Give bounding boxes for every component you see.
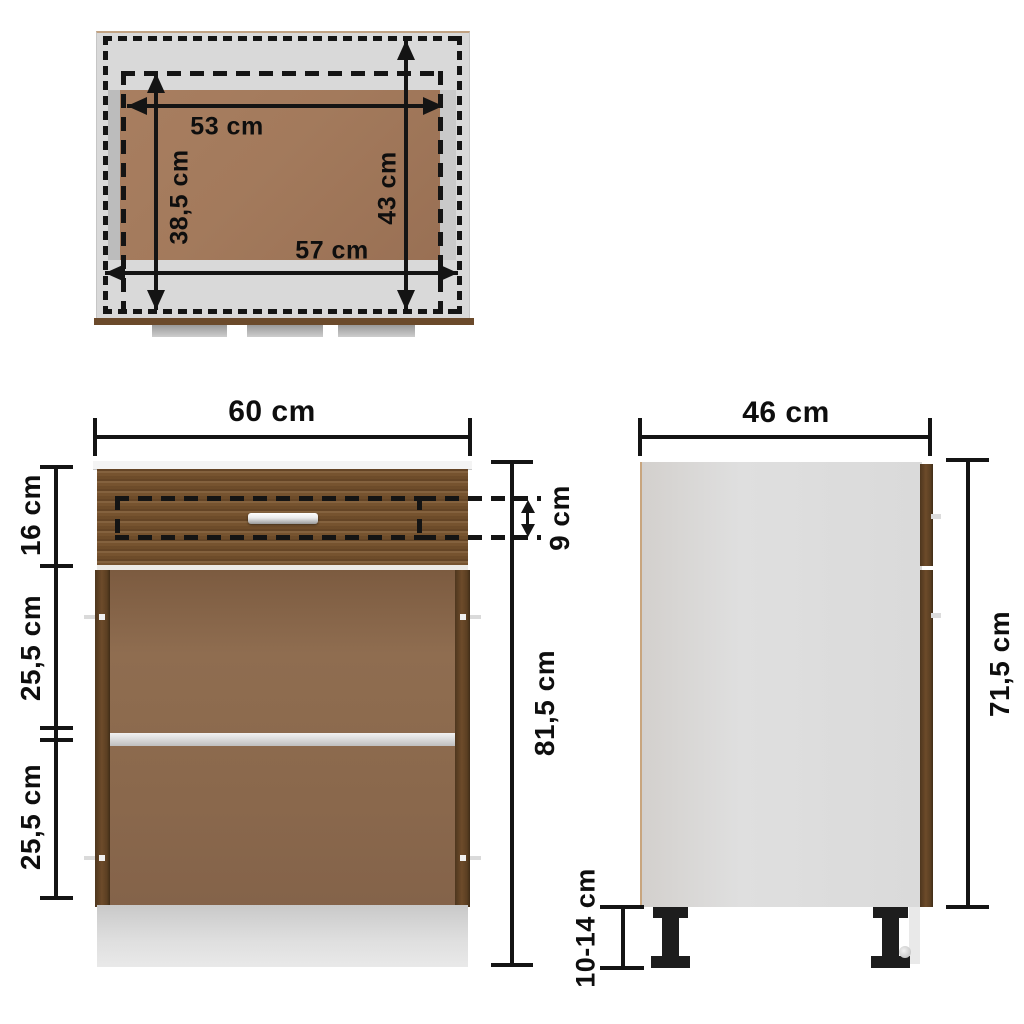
dim-label-body-height: 71,5 cm xyxy=(984,611,1016,717)
drawer-dashed-top xyxy=(115,496,422,501)
top-view-hinge-tab xyxy=(152,325,227,337)
hinge-pin xyxy=(470,856,481,860)
front-plinth xyxy=(97,905,468,967)
left-dim-tick xyxy=(40,738,73,742)
side-panel xyxy=(640,462,922,907)
arrow-up-icon xyxy=(521,500,535,513)
dim-81_5-line xyxy=(510,462,514,965)
arrow-right-icon xyxy=(438,264,458,282)
hinge-dot xyxy=(99,855,105,861)
dim-43-line xyxy=(404,40,408,310)
dim-label-top-outer-depth: 43 cm xyxy=(374,151,403,224)
hinge-pin xyxy=(84,615,95,619)
top-view-hinge-tab xyxy=(247,325,323,337)
dim-60-tick-left xyxy=(93,418,97,456)
arrow-up-icon xyxy=(147,73,165,93)
dim-10-14-tick-top xyxy=(600,905,644,909)
side-handle-mark xyxy=(931,514,941,519)
dim-label-leg-height: 10-14 cm xyxy=(571,868,602,988)
hinge-dot xyxy=(99,614,105,620)
dim-81_5-tick-top xyxy=(491,460,533,464)
dim-10-14-line xyxy=(621,907,625,968)
left-dim-tick xyxy=(40,564,73,568)
left-dim-tick xyxy=(40,726,73,730)
leg-stem xyxy=(882,918,899,958)
drawer-dashed-bottom xyxy=(115,535,422,540)
dim-label-top-outer-width: 57 cm xyxy=(295,237,368,266)
arrow-down-icon xyxy=(147,290,165,310)
dim-10-14-tick-bottom xyxy=(600,966,644,970)
hinge-pin xyxy=(470,615,481,619)
top-view-worktop-front-edge xyxy=(94,318,474,325)
dim-label-top-inner-depth: 38,5 cm xyxy=(166,149,195,244)
dim-60-line xyxy=(95,435,470,439)
drawer-handle xyxy=(248,513,318,524)
dim-label-total-height: 81,5 cm xyxy=(529,650,561,756)
dim-label-side-depth: 46 cm xyxy=(742,396,830,430)
hinge-pin xyxy=(84,856,95,860)
leg-stem xyxy=(662,918,679,958)
left-dim-tick xyxy=(40,896,73,900)
dim-53-line xyxy=(127,104,443,108)
dim-60-tick-right xyxy=(468,418,472,456)
dim-46-tick-right xyxy=(928,418,932,456)
drawer-dashed-right xyxy=(417,496,422,540)
dim-71_5-tick-top xyxy=(946,458,989,462)
drawer-dashed-left xyxy=(115,496,120,540)
arrow-left-icon xyxy=(127,97,147,115)
shelf xyxy=(110,733,455,746)
leg-plate xyxy=(653,907,688,918)
dim-38_5-line xyxy=(154,73,158,310)
dim-label-drawer-inner-height: 9 cm xyxy=(544,485,576,551)
side-handle-mark xyxy=(931,613,941,618)
dim-label-upper-compartment: 25,5 cm xyxy=(15,595,47,701)
side-door-front-edge xyxy=(920,570,933,907)
leg-plate xyxy=(873,907,908,918)
arrow-left-icon xyxy=(105,264,125,282)
side-plinth-strip xyxy=(909,907,920,964)
top-view-hinge-tab xyxy=(338,325,415,337)
hinge-dot xyxy=(460,855,466,861)
dim-71_5-tick-bottom xyxy=(946,905,989,909)
left-dim-tick xyxy=(40,465,73,469)
top-view-left-wall-shadow xyxy=(108,90,120,260)
dim-71_5-line xyxy=(966,460,970,907)
leg-foot xyxy=(651,956,690,968)
left-dim-line xyxy=(54,467,58,898)
dim-label-lower-compartment: 25,5 cm xyxy=(15,764,47,870)
dim-label-drawer-front-height: 16 cm xyxy=(15,474,47,556)
dim-81_5-tick-bottom xyxy=(491,963,533,967)
inner-dashed-top xyxy=(121,71,443,76)
arrow-down-icon xyxy=(521,524,535,537)
arrow-up-icon xyxy=(397,40,415,60)
dim-46-tick-left xyxy=(638,418,642,456)
cabinet-dimension-diagram: 53 cm 57 cm 38,5 cm 43 cm xyxy=(0,0,1024,1024)
arrow-right-icon xyxy=(423,97,443,115)
leg-adjuster-screw xyxy=(899,946,911,958)
dim-label-top-inner-width: 53 cm xyxy=(190,113,263,142)
arrow-down-icon xyxy=(397,290,415,310)
dim-46-line xyxy=(640,435,930,439)
dim-label-front-width: 60 cm xyxy=(228,395,316,429)
hinge-dot xyxy=(460,614,466,620)
